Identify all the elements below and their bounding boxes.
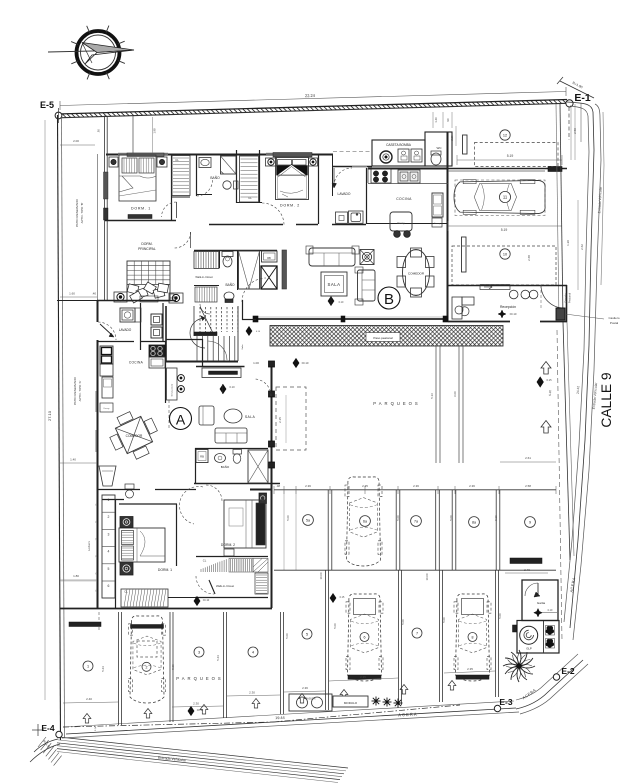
svg-text:2.36: 2.36	[302, 686, 308, 690]
svg-text:3: 3	[108, 532, 110, 536]
svg-text:2.68: 2.68	[527, 255, 531, 261]
svg-text:2.62: 2.62	[580, 244, 584, 250]
svg-text:7: 7	[416, 632, 418, 636]
svg-text:27.10: 27.10	[47, 410, 52, 421]
svg-text:COMEDOR: COMEDOR	[408, 272, 425, 276]
svg-text:Lockers: Lockers	[87, 541, 91, 551]
svg-text:6: 6	[108, 584, 110, 588]
svg-text:CASETA BOMBA: CASETA BOMBA	[386, 143, 412, 147]
svg-text:RB: RB	[267, 256, 271, 260]
svg-text:Peatonal: Peatonal	[568, 292, 572, 303]
svg-text:2.30: 2.30	[193, 702, 199, 706]
svg-text:Entrada: Entrada	[564, 293, 568, 303]
svg-text:90: 90	[446, 118, 450, 122]
svg-text:1.40: 1.40	[70, 458, 76, 462]
svg-text:2.50: 2.50	[450, 135, 454, 141]
svg-text:Casilero: Casilero	[608, 316, 619, 320]
svg-text:Paso peatonal: Paso peatonal	[373, 336, 393, 340]
svg-text:5.19: 5.19	[501, 228, 508, 232]
svg-text:11: 11	[503, 195, 508, 200]
svg-text:DORM.: DORM.	[141, 242, 152, 246]
svg-text:E-3: E-3	[499, 697, 513, 707]
svg-text:Desay: Desay	[104, 408, 110, 410]
svg-text:E-2: E-2	[561, 666, 575, 676]
svg-text:0.10: 0.10	[548, 609, 553, 612]
svg-text:1.00: 1.00	[253, 361, 259, 365]
svg-text:APTO. TIPO 'B': APTO. TIPO 'B'	[80, 202, 84, 223]
svg-text:0.15: 0.15	[340, 596, 345, 599]
svg-text:6: 6	[364, 636, 366, 640]
svg-text:5.24: 5.24	[101, 666, 105, 672]
svg-text:DORM. 2: DORM. 2	[221, 543, 235, 547]
svg-text:5a: 5a	[306, 519, 310, 523]
svg-text:1.98: 1.98	[153, 128, 157, 134]
svg-text:WC: WC	[437, 146, 443, 150]
svg-text:9: 9	[529, 521, 531, 525]
svg-text:CL: CL	[124, 590, 128, 594]
svg-text:.48: .48	[276, 484, 280, 488]
svg-text:5.00: 5.00	[286, 515, 290, 521]
svg-text:GLP: GLP	[526, 647, 532, 651]
svg-text:COCINA: COCINA	[129, 361, 144, 365]
svg-text:DORM. 2: DORM. 2	[280, 204, 300, 208]
svg-text:±0.10: ±0.10	[203, 598, 210, 602]
svg-text:5.00: 5.00	[442, 617, 446, 623]
svg-text:2.40: 2.40	[86, 697, 92, 701]
svg-text:APTO. TIPO 'A': APTO. TIPO 'A'	[78, 380, 82, 401]
svg-text:E-1: E-1	[574, 92, 591, 104]
svg-text:E-4: E-4	[41, 723, 55, 733]
svg-text:LAVADO: LAVADO	[119, 328, 132, 332]
svg-text:Walk-in-Closet: Walk-in-Closet	[216, 584, 234, 588]
svg-text:0.15: 0.15	[546, 378, 552, 382]
svg-text:PATIO RESERVADO: PATIO RESERVADO	[75, 198, 79, 227]
svg-text:ACERA: ACERA	[398, 711, 418, 717]
svg-text:5.00: 5.00	[449, 515, 453, 521]
svg-text:8: 8	[472, 636, 474, 640]
svg-text:CL: CL	[175, 158, 179, 162]
svg-text:5.13: 5.13	[430, 393, 434, 399]
svg-text:Garita: Garita	[537, 601, 546, 605]
svg-text:SALA: SALA	[245, 415, 256, 419]
svg-text:4: 4	[252, 651, 254, 655]
svg-text:2: 2	[108, 515, 110, 519]
svg-text:5.00: 5.00	[396, 515, 400, 521]
svg-text:A: A	[176, 412, 186, 428]
svg-text:6.20: 6.20	[548, 390, 552, 396]
svg-text:6.00: 6.00	[453, 391, 457, 397]
svg-text:5.00: 5.00	[498, 613, 502, 619]
svg-text:5.00: 5.00	[171, 664, 175, 670]
svg-text:2.36: 2.36	[469, 484, 475, 488]
svg-text:SALA: SALA	[328, 282, 341, 287]
svg-text:5.00: 5.00	[401, 619, 405, 625]
svg-text:2.50: 2.50	[573, 128, 577, 134]
svg-text:1.80: 1.80	[73, 574, 79, 578]
svg-text:2: 2	[146, 665, 148, 669]
svg-text:2.35: 2.35	[362, 484, 368, 488]
svg-text:5.00: 5.00	[494, 515, 498, 521]
svg-text:RB: RB	[200, 455, 204, 459]
svg-text:MODULO: MODULO	[344, 701, 358, 705]
svg-text:5: 5	[306, 633, 308, 637]
svg-text:2.15: 2.15	[278, 417, 282, 423]
svg-text:±0.10: ±0.10	[302, 361, 309, 365]
svg-text:Desayunador: Desayunador	[171, 384, 174, 397]
svg-text:6a: 6a	[363, 520, 367, 524]
svg-text:Postal: Postal	[610, 321, 619, 325]
svg-text:.40: .40	[92, 292, 97, 296]
svg-text:4: 4	[108, 550, 110, 554]
svg-text:1.60: 1.60	[69, 292, 75, 296]
svg-text:2.61: 2.61	[525, 456, 531, 460]
svg-text:2.36: 2.36	[413, 484, 419, 488]
svg-text:±0.10: ±0.10	[510, 312, 517, 316]
svg-text:19.44: 19.44	[275, 716, 285, 720]
svg-text:COCINA: COCINA	[396, 197, 412, 201]
svg-text:Sube: Sube	[242, 344, 244, 350]
svg-text:2.49: 2.49	[524, 568, 530, 572]
svg-text:CALLE 9: CALLE 9	[599, 372, 614, 428]
svg-text:5.00: 5.00	[333, 623, 337, 629]
svg-text:BASURA: BASURA	[306, 698, 316, 701]
svg-text:.95: .95	[97, 129, 101, 133]
svg-text:10: 10	[503, 253, 507, 257]
svg-text:2.36: 2.36	[305, 484, 311, 488]
svg-text:2.58: 2.58	[525, 484, 531, 488]
svg-text:5.19: 5.19	[507, 154, 514, 158]
svg-text:2.35: 2.35	[360, 675, 366, 679]
svg-text:PARQUEOS: PARQUEOS	[176, 676, 223, 681]
svg-text:2.00: 2.00	[73, 139, 79, 143]
svg-text:1: 1	[108, 498, 110, 502]
svg-text:Desay: Desay	[434, 223, 440, 225]
svg-text:1.40: 1.40	[434, 117, 438, 123]
svg-text:CL: CL	[248, 196, 252, 200]
svg-text:DORM. 1: DORM. 1	[131, 207, 151, 211]
svg-text:Desay: Desay	[397, 221, 405, 225]
svg-text:B: B	[384, 291, 394, 308]
svg-text:Walk-in-Closet: Walk-in-Closet	[195, 275, 213, 279]
svg-text:CL: CL	[203, 559, 207, 563]
svg-text:COMEDOR: COMEDOR	[126, 434, 143, 438]
svg-text:5.00: 5.00	[285, 633, 289, 639]
svg-text:5.24: 5.24	[216, 655, 220, 661]
svg-text:1.20: 1.20	[566, 240, 570, 246]
svg-text:0.10: 0.10	[229, 385, 235, 389]
svg-text:0.10: 0.10	[339, 301, 344, 304]
svg-text:±0.10: ±0.10	[197, 708, 204, 712]
svg-text:2.30: 2.30	[249, 691, 255, 695]
svg-text:BAÑO: BAÑO	[210, 175, 220, 180]
svg-text:12: 12	[503, 134, 507, 138]
svg-text:LAVADO: LAVADO	[338, 192, 351, 196]
svg-text:PRINCIPAL: PRINCIPAL	[138, 247, 156, 251]
svg-text:3: 3	[198, 651, 200, 655]
svg-text:Recepción: Recepción	[500, 305, 516, 309]
svg-text:PATIO RESERVADO: PATIO RESERVADO	[73, 376, 77, 405]
svg-text:E-5: E-5	[40, 100, 54, 110]
svg-text:BAÑO: BAÑO	[221, 464, 230, 469]
svg-text:1: 1	[87, 665, 89, 669]
svg-text:7a: 7a	[414, 520, 418, 524]
svg-text:10.00: 10.00	[319, 572, 323, 579]
svg-text:2.35: 2.35	[467, 667, 473, 671]
svg-text:22.24: 22.24	[305, 93, 316, 98]
svg-text:BAÑO: BAÑO	[225, 282, 235, 287]
svg-text:8a: 8a	[472, 521, 476, 525]
svg-text:DORM. 1: DORM. 1	[158, 568, 172, 572]
svg-text:10.00: 10.00	[425, 573, 429, 580]
svg-text:PARQUEOS: PARQUEOS	[373, 401, 420, 406]
svg-text:5: 5	[108, 567, 110, 571]
svg-text:24.42: 24.42	[576, 386, 581, 394]
